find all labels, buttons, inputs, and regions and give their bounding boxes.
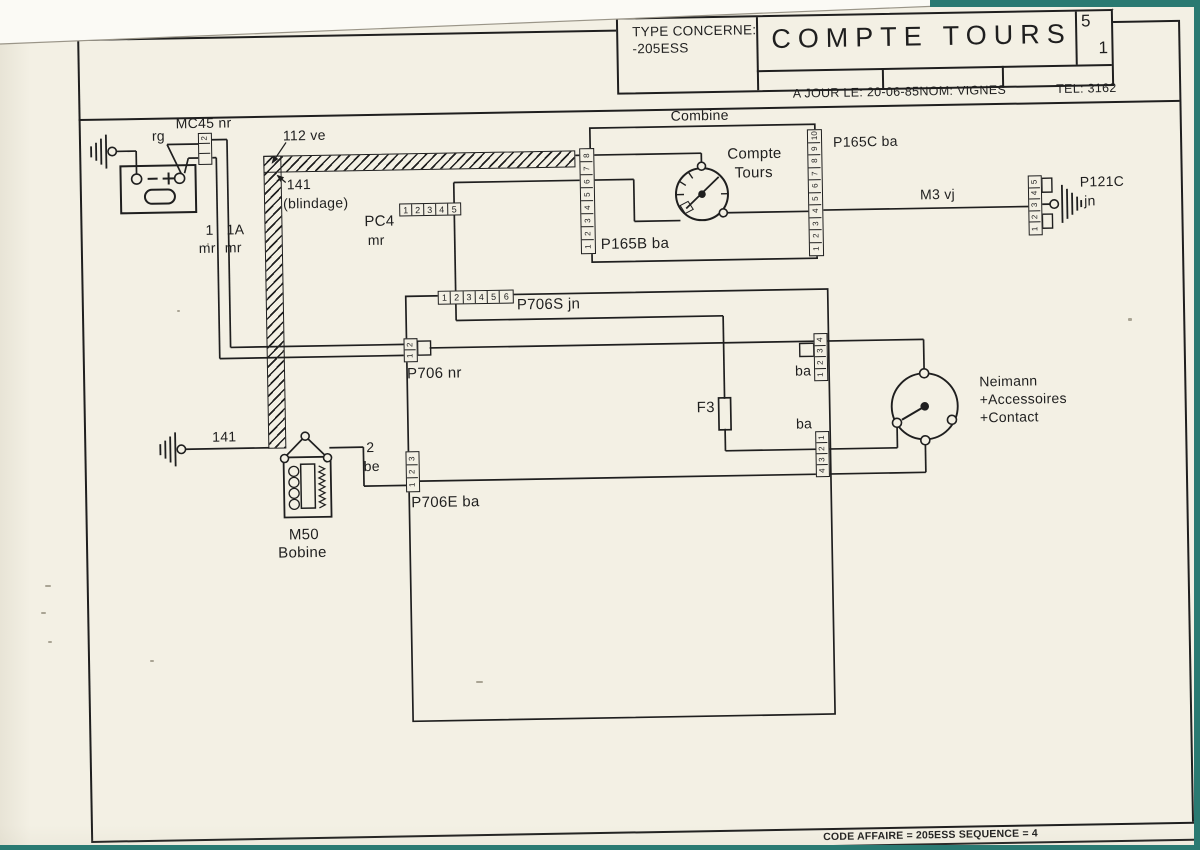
connector-pin: 2 bbox=[582, 227, 595, 240]
connector-pin: 2 bbox=[412, 204, 424, 215]
connector-pin: 1 bbox=[816, 432, 828, 443]
connector-pin: 6 bbox=[500, 291, 513, 303]
connector-P706: 21 bbox=[403, 338, 417, 362]
drawing-title: COMPTE TOURS bbox=[771, 20, 1072, 54]
connector-pin: 3 bbox=[463, 291, 476, 303]
diagram-label: P706E ba bbox=[411, 494, 480, 511]
diagram-label: MC45 nr bbox=[176, 115, 232, 131]
diagram-label: +Contact bbox=[980, 409, 1039, 425]
connector-pin: 8 bbox=[580, 149, 593, 162]
scan-speck bbox=[150, 660, 154, 662]
connector-P165B: 87654321 bbox=[579, 148, 596, 254]
connector-pin: 2 bbox=[810, 230, 823, 243]
diagram-label: be bbox=[364, 459, 380, 474]
connector-pin: 3 bbox=[406, 452, 418, 465]
diagram-label: jn bbox=[1084, 193, 1096, 208]
scan-speck bbox=[45, 585, 51, 587]
connector-P706E: 321 bbox=[405, 451, 420, 492]
connector-pin: 1 bbox=[405, 350, 417, 361]
diagram-label: 1 bbox=[205, 223, 213, 238]
connector-pin: 5 bbox=[809, 193, 822, 206]
title-block: TYPE CONCERNE: -205ESS COMPTE TOURS 5 1 … bbox=[616, 9, 1114, 95]
diagram-label: 141 bbox=[287, 177, 312, 192]
connector-pin: 5 bbox=[448, 203, 460, 214]
author-name: NOM: VIGNES bbox=[889, 71, 1007, 112]
connector-MC45: 2 bbox=[198, 133, 213, 165]
diagram-label: M50 bbox=[289, 527, 319, 543]
connector-BA-LOWER: 1234 bbox=[815, 431, 830, 477]
connector-pin: 3 bbox=[424, 204, 436, 215]
connector-pin: 2 bbox=[407, 465, 419, 478]
diagram-label: +Accessoires bbox=[979, 391, 1066, 407]
connector-pin: 5 bbox=[1029, 176, 1041, 188]
diagram-label: M3 vj bbox=[920, 187, 955, 202]
diagram-label: 1A bbox=[226, 222, 244, 237]
connector-pin: 6 bbox=[581, 175, 594, 188]
connector-pin bbox=[199, 154, 211, 164]
diagram-label: Neimann bbox=[979, 373, 1037, 389]
connector-pin: 3 bbox=[815, 346, 827, 358]
connector-pin: 2 bbox=[404, 339, 416, 350]
sheet-number-top: 5 bbox=[1081, 12, 1091, 30]
scan-speck bbox=[48, 641, 52, 643]
diagram-label: P165B ba bbox=[601, 236, 670, 253]
diagram-label: mr bbox=[368, 233, 385, 248]
diagram-label: Bobine bbox=[278, 545, 327, 562]
type-concerne-label: TYPE CONCERNE: bbox=[632, 23, 756, 39]
diagram-label: mr bbox=[225, 240, 242, 255]
connector-pin: 2 bbox=[1029, 211, 1041, 223]
connector-pin: 7 bbox=[809, 168, 822, 181]
connector-P165C: 10987654321 bbox=[807, 129, 824, 256]
scanned-wiring-diagram-page: TYPE CONCERNE: -205ESS COMPTE TOURS 5 1 … bbox=[0, 0, 1200, 850]
connector-pin: 3 bbox=[809, 218, 822, 231]
scanner-background-top bbox=[930, 0, 1200, 7]
diagram-label: P706 nr bbox=[407, 365, 462, 382]
scan-speck bbox=[177, 310, 180, 312]
scan-speck bbox=[1128, 318, 1132, 321]
connector-pin: 3 bbox=[581, 214, 594, 227]
connector-pin: 7 bbox=[580, 162, 593, 175]
diagram-label: P706S jn bbox=[517, 296, 581, 313]
connector-pin: 2 bbox=[815, 357, 827, 369]
diagram-label: P121C bbox=[1080, 174, 1125, 189]
connector-pin: 1 bbox=[1030, 223, 1042, 235]
connector-BA-UPPER: 4321 bbox=[813, 333, 828, 381]
diagram-label: PC4 bbox=[364, 214, 394, 230]
connector-pin: 3 bbox=[1029, 199, 1041, 211]
diagram-label: F3 bbox=[697, 400, 715, 416]
connector-pin: 2 bbox=[199, 134, 211, 144]
diagram-label: Compte bbox=[727, 146, 782, 163]
diagram-label: 2 bbox=[366, 440, 374, 455]
connector-pin bbox=[199, 144, 211, 154]
connector-pin: 4 bbox=[1029, 188, 1041, 200]
diagram-label: 112 ve bbox=[283, 128, 326, 143]
connector-pin: 4 bbox=[476, 291, 489, 303]
diagram-label: 141 bbox=[212, 429, 237, 444]
scan-speck bbox=[41, 612, 46, 614]
telephone: TEL: 3162 bbox=[1026, 69, 1117, 110]
connector-pin: 2 bbox=[816, 443, 828, 454]
connector-PC4: 12345 bbox=[399, 202, 461, 216]
connector-pin: 1 bbox=[439, 292, 452, 304]
connector-pin: 4 bbox=[436, 204, 448, 215]
scan-speck bbox=[476, 681, 483, 683]
diagram-label: (blindage) bbox=[283, 195, 349, 211]
sheet-number-bottom: 1 bbox=[1098, 39, 1108, 57]
scan-speck bbox=[207, 243, 209, 245]
connector-pin: 6 bbox=[809, 180, 822, 193]
connector-pin: 1 bbox=[400, 204, 412, 215]
connector-pin: 3 bbox=[817, 454, 829, 465]
connector-pin: 9 bbox=[808, 143, 821, 156]
connector-pin: 1 bbox=[810, 243, 823, 256]
connector-pin: 5 bbox=[488, 291, 501, 303]
connector-pin: 4 bbox=[817, 465, 829, 476]
diagram-label: ba bbox=[796, 416, 812, 431]
connector-pin: 1 bbox=[407, 478, 419, 491]
connector-pin: 1 bbox=[582, 240, 595, 253]
connector-pin: 10 bbox=[808, 130, 821, 143]
connector-pin: 1 bbox=[815, 369, 827, 381]
diagram-label: Combine bbox=[670, 108, 728, 124]
connector-P121C: 54321 bbox=[1028, 175, 1043, 235]
connector-pin: 4 bbox=[581, 201, 594, 214]
connector-pin: 2 bbox=[451, 291, 464, 303]
connector-pin: 8 bbox=[808, 155, 821, 168]
diagram-label: rg bbox=[152, 129, 165, 144]
diagram-label: P165C ba bbox=[833, 134, 898, 150]
connector-pin: 5 bbox=[581, 188, 594, 201]
type-concerne-value: -205ESS bbox=[632, 41, 688, 56]
diagram-label: ba bbox=[795, 363, 811, 378]
connector-pin: 4 bbox=[809, 205, 822, 218]
diagram-label: Tours bbox=[734, 165, 772, 181]
scanner-background-right bbox=[1194, 0, 1200, 850]
connector-pin: 4 bbox=[814, 334, 826, 346]
schematic-sheet: TYPE CONCERNE: -205ESS COMPTE TOURS 5 1 … bbox=[0, 0, 1200, 850]
connector-P706S: 123456 bbox=[438, 289, 514, 304]
scanner-background-bottom bbox=[0, 845, 1200, 850]
